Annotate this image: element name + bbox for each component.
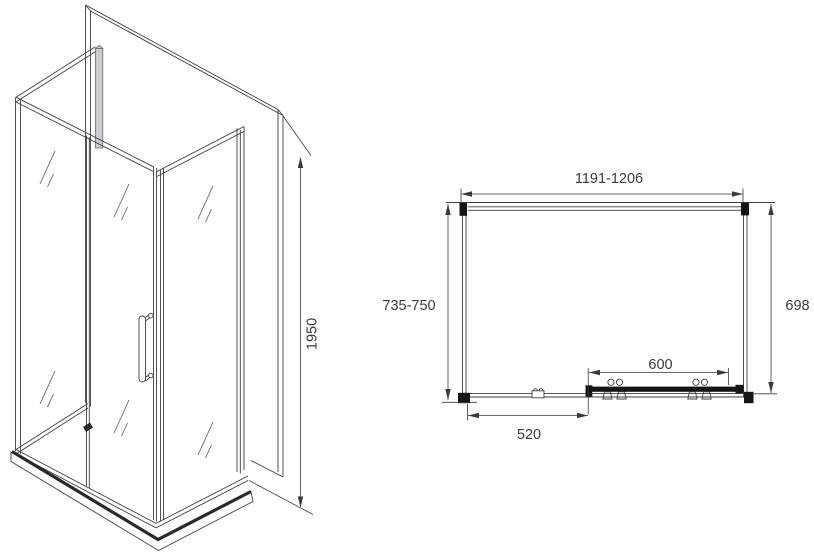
glass-hatch-marks xyxy=(114,184,129,436)
dimension-fixed-panel: 520 xyxy=(468,404,588,443)
plan-view: 1191-1206 735-750 698 600 xyxy=(382,171,809,443)
dim-width-label: 1191-1206 xyxy=(575,171,643,187)
dim-fixed-panel-label: 520 xyxy=(517,427,541,443)
technical-drawing-page: 1950 xyxy=(0,0,814,558)
door-bottom-guide xyxy=(83,423,93,433)
plan-outline xyxy=(446,203,775,398)
corner-profile xyxy=(96,45,103,148)
sliding-door-bar xyxy=(532,379,744,399)
dim-right-depth-label: 698 xyxy=(785,298,809,314)
glass-hatch-marks xyxy=(198,186,213,458)
shower-enclosure-drawing: 1950 xyxy=(0,0,814,558)
dim-height-label: 1950 xyxy=(305,318,321,350)
back-wall-panel xyxy=(86,5,284,477)
dimension-right-depth: 698 xyxy=(752,204,810,394)
right-glass-panel xyxy=(156,127,248,528)
dimension-door-width: 600 xyxy=(588,357,728,415)
dimension-width: 1191-1206 xyxy=(461,171,743,203)
door-handle xyxy=(139,313,153,382)
fixed-panel-clamp xyxy=(532,389,544,398)
front-sliding-door-wall xyxy=(16,97,164,528)
isometric-view: 1950 xyxy=(11,5,321,551)
dim-left-depth-label: 735-750 xyxy=(382,298,435,314)
dimension-height: 1950 xyxy=(249,116,321,515)
dim-door-width-label: 600 xyxy=(648,357,672,373)
glass-hatch-marks xyxy=(40,151,55,407)
wall-profiles xyxy=(458,203,754,403)
